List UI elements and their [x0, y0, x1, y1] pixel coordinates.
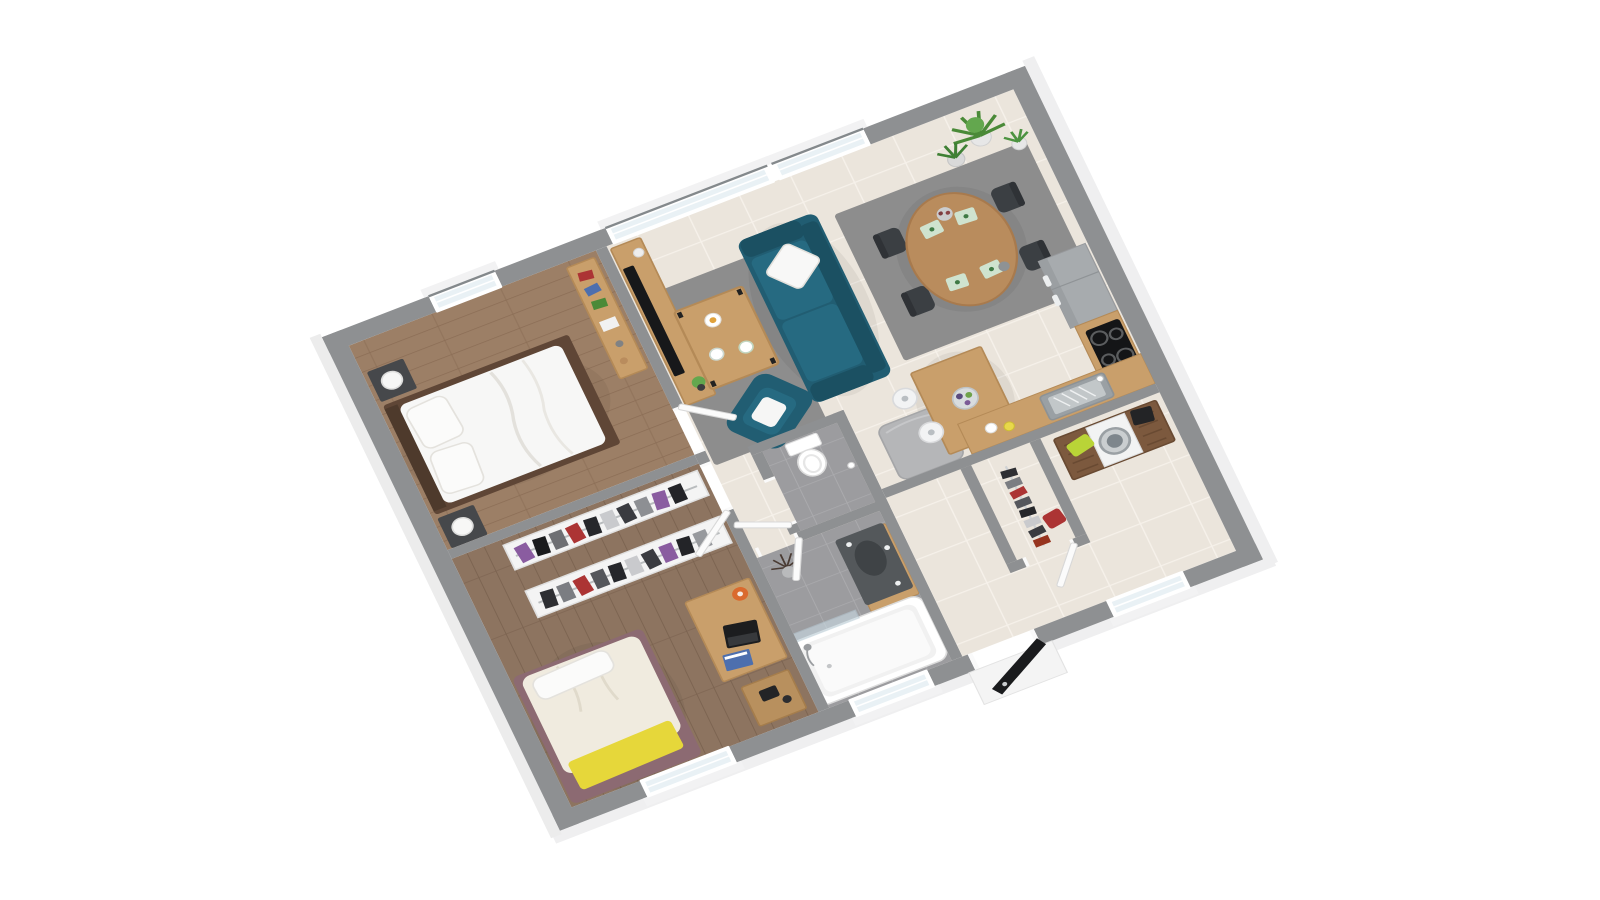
plan-group: [308, 54, 1290, 867]
door-leaf-wc: [734, 522, 792, 528]
floor-plan-render: [0, 0, 1600, 900]
floor-plan-svg: [0, 0, 1600, 900]
